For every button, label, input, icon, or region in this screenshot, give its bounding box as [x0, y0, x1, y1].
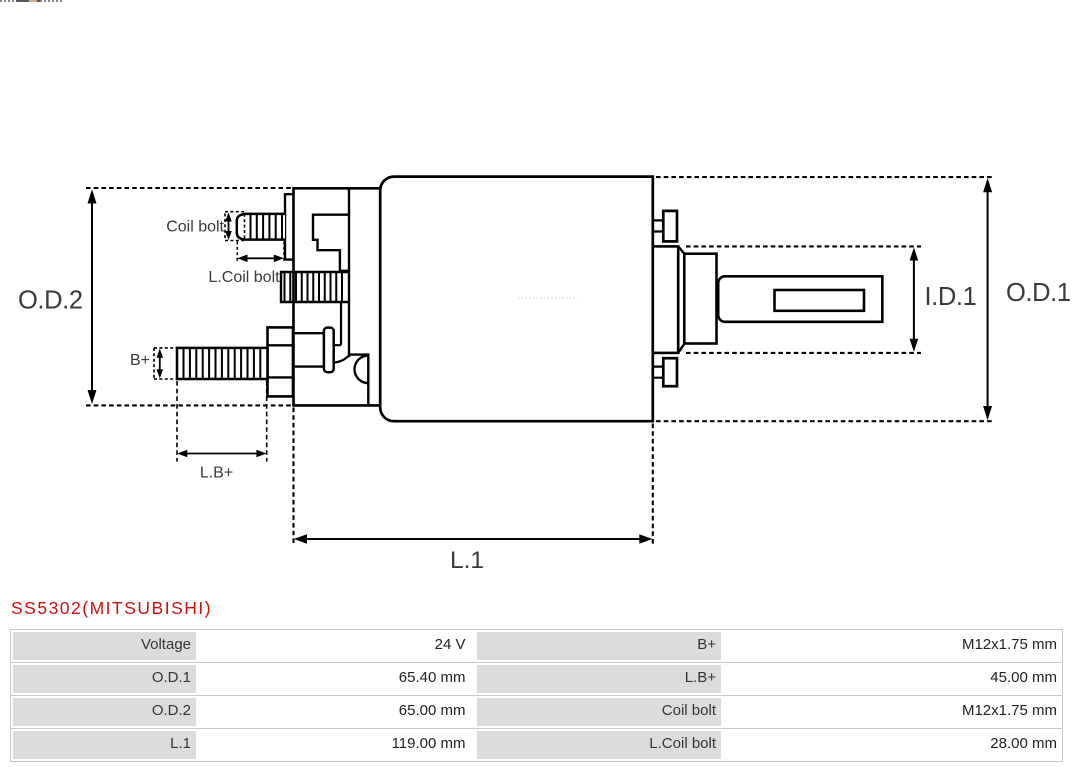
- svg-text:L.B+: L.B+: [200, 465, 233, 482]
- svg-text:L.Coil bolt: L.Coil bolt: [208, 269, 280, 286]
- svg-text:O.D.2: O.D.2: [18, 287, 83, 315]
- svg-text:B+: B+: [130, 352, 150, 369]
- svg-text:Coil bolt: Coil bolt: [166, 219, 224, 236]
- svg-text:I.D.1: I.D.1: [925, 283, 977, 311]
- svg-text:L.1: L.1: [450, 547, 484, 574]
- svg-text:O.D.1: O.D.1: [1006, 279, 1071, 307]
